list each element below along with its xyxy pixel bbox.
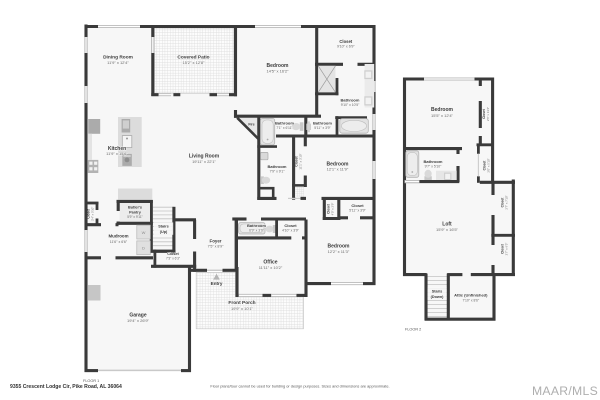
svg-text:2'7" x 6'5": 2'7" x 6'5" — [504, 243, 508, 256]
svg-text:11'9" x 12'4": 11'9" x 12'4" — [107, 60, 129, 65]
svg-text:Butler's: Butler's — [128, 206, 142, 210]
svg-text:Bathroom: Bathroom — [275, 121, 294, 126]
svg-text:15'9" x 16'5": 15'9" x 16'5" — [436, 227, 459, 232]
svg-text:14'5" x 16'2": 14'5" x 16'2" — [267, 69, 290, 74]
svg-text:Mudroom: Mudroom — [109, 233, 129, 238]
svg-text:(Down): (Down) — [431, 295, 445, 299]
svg-text:Stairs: Stairs — [158, 225, 169, 229]
svg-text:Closet: Closet — [339, 39, 352, 44]
svg-text:Fire: Fire — [248, 123, 254, 127]
svg-text:Bathroom: Bathroom — [341, 98, 360, 103]
svg-text:15'2" x 12'8": 15'2" x 12'8" — [183, 60, 206, 65]
svg-text:Closet: Closet — [284, 223, 297, 228]
svg-text:15'5" x 12'4": 15'5" x 12'4" — [431, 113, 454, 118]
svg-text:Bathroom: Bathroom — [247, 223, 266, 228]
svg-text:2'6" x 13'4": 2'6" x 13'4" — [486, 107, 490, 121]
svg-text:11'11" x 10'2": 11'11" x 10'2" — [259, 265, 283, 270]
svg-text:7'5" x 8'9": 7'5" x 8'9" — [208, 244, 224, 248]
svg-text:12'1" x 11'9": 12'1" x 11'9" — [327, 166, 349, 171]
svg-text:Floor plans/tour cannot be use: Floor plans/tour cannot be used for buil… — [210, 384, 389, 389]
svg-text:Bathroom: Bathroom — [313, 121, 332, 126]
svg-text:7'3" x 6'3": 7'3" x 6'3" — [166, 257, 180, 261]
svg-text:D: D — [142, 246, 145, 251]
svg-text:9'10" x 10'5": 9'10" x 10'5" — [341, 103, 360, 107]
svg-text:4'0" x 2'9": 4'0" x 2'9" — [331, 203, 335, 216]
svg-text:11'9" x 15'6": 11'9" x 15'6" — [106, 151, 128, 156]
svg-text:12'2" x 11'3": 12'2" x 11'3" — [328, 249, 350, 254]
svg-text:Closet: Closet — [167, 252, 179, 256]
svg-text:Pantry: Pantry — [129, 210, 142, 214]
svg-text:MAAR/MLS: MAAR/MLS — [532, 384, 598, 398]
svg-text:Foyer: Foyer — [210, 239, 222, 244]
svg-text:4'10" x 3'9": 4'10" x 3'9" — [282, 229, 300, 233]
svg-text:W: W — [142, 230, 146, 235]
svg-text:11'1" x 3'10": 11'1" x 3'10" — [298, 153, 302, 169]
svg-text:9'10" x 6'9": 9'10" x 6'9" — [337, 45, 355, 49]
svg-text:5'11" x 3'9": 5'11" x 3'9" — [349, 208, 366, 212]
svg-text:19'9" x 10'1": 19'9" x 10'1" — [231, 306, 254, 311]
svg-text:2'0" x 5'10": 2'0" x 5'10" — [486, 158, 490, 172]
svg-text:Bathroom: Bathroom — [268, 164, 287, 169]
svg-text:19'11" x 22'1": 19'11" x 22'1" — [192, 159, 216, 164]
svg-text:7'10" x 8'6": 7'10" x 8'6" — [462, 299, 480, 303]
svg-text:2'4" x 3'10": 2'4" x 3'10" — [90, 207, 94, 221]
svg-text:5'9" x 9'11": 5'9" x 9'11" — [127, 215, 142, 219]
svg-text:Attic (Unfinished): Attic (Unfinished) — [454, 293, 488, 298]
svg-text:(Up): (Up) — [160, 230, 168, 234]
svg-text:Closet: Closet — [351, 203, 364, 208]
svg-text:Bathroom: Bathroom — [424, 159, 443, 164]
svg-text:9'7" x 5'10": 9'7" x 5'10" — [425, 165, 443, 169]
svg-text:2'7" x 7'10": 2'7" x 7'10" — [504, 195, 508, 209]
svg-text:Stairs: Stairs — [432, 290, 443, 294]
svg-text:FLOOR 1: FLOOR 1 — [83, 379, 99, 383]
svg-text:FLOOR 2: FLOOR 2 — [405, 328, 421, 332]
svg-text:7'9" x 9'1": 7'9" x 9'1" — [270, 170, 286, 174]
svg-text:5'11" x 3'9": 5'11" x 3'9" — [314, 126, 331, 130]
svg-text:7'1" x 6'11": 7'1" x 6'11" — [276, 126, 293, 130]
svg-text:19'4" x 26'9": 19'4" x 26'9" — [127, 318, 150, 323]
svg-text:9355 Crescent Lodge Cir, Pike: 9355 Crescent Lodge Cir, Pike Road, AL 3… — [10, 384, 122, 390]
svg-text:Entry: Entry — [211, 281, 223, 286]
svg-text:11'6" x 6'6": 11'6" x 6'6" — [110, 240, 128, 244]
svg-text:6'9" x 3'9": 6'9" x 3'9" — [249, 229, 265, 233]
